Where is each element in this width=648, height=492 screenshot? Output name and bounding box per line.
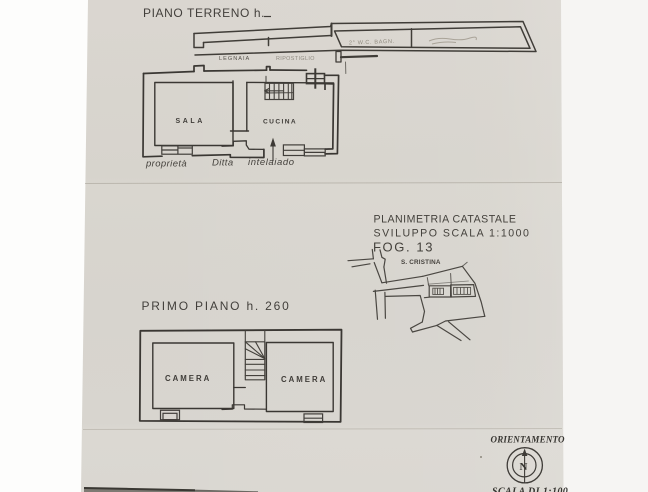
svg-text:LEGNAIA: LEGNAIA [219,56,250,62]
svg-text:S. CRISTINA: S. CRISTINA [401,259,441,266]
svg-text:PLANIMETRIA CATASTALE: PLANIMETRIA CATASTALE [374,214,517,226]
svg-text:PRIMO PIANO h. 260: PRIMO PIANO h. 260 [142,299,291,313]
svg-text:ORIENTAMENTO: ORIENTAMENTO [491,435,566,445]
svg-text:FOG. 13: FOG. 13 [373,240,434,255]
svg-text:CUCINA: CUCINA [263,119,297,126]
svg-text:SCALA DI 1:100: SCALA DI 1:100 [492,487,568,492]
svg-text:SALA: SALA [176,118,205,125]
svg-text:RIPOSTIGLIO: RIPOSTIGLIO [276,56,315,62]
svg-text:N: N [520,461,528,473]
svg-text:intelaiado: intelaiado [248,157,295,168]
svg-text:CAMERA: CAMERA [281,375,327,384]
svg-text:CAMERA: CAMERA [165,374,211,383]
svg-text:PIANO TERRENO h.: PIANO TERRENO h. [143,6,265,20]
svg-text:SVILUPPO SCALA 1:1000: SVILUPPO SCALA 1:1000 [374,228,531,240]
svg-text:Ditta: Ditta [212,158,234,169]
svg-text:proprietà: proprietà [145,159,187,170]
